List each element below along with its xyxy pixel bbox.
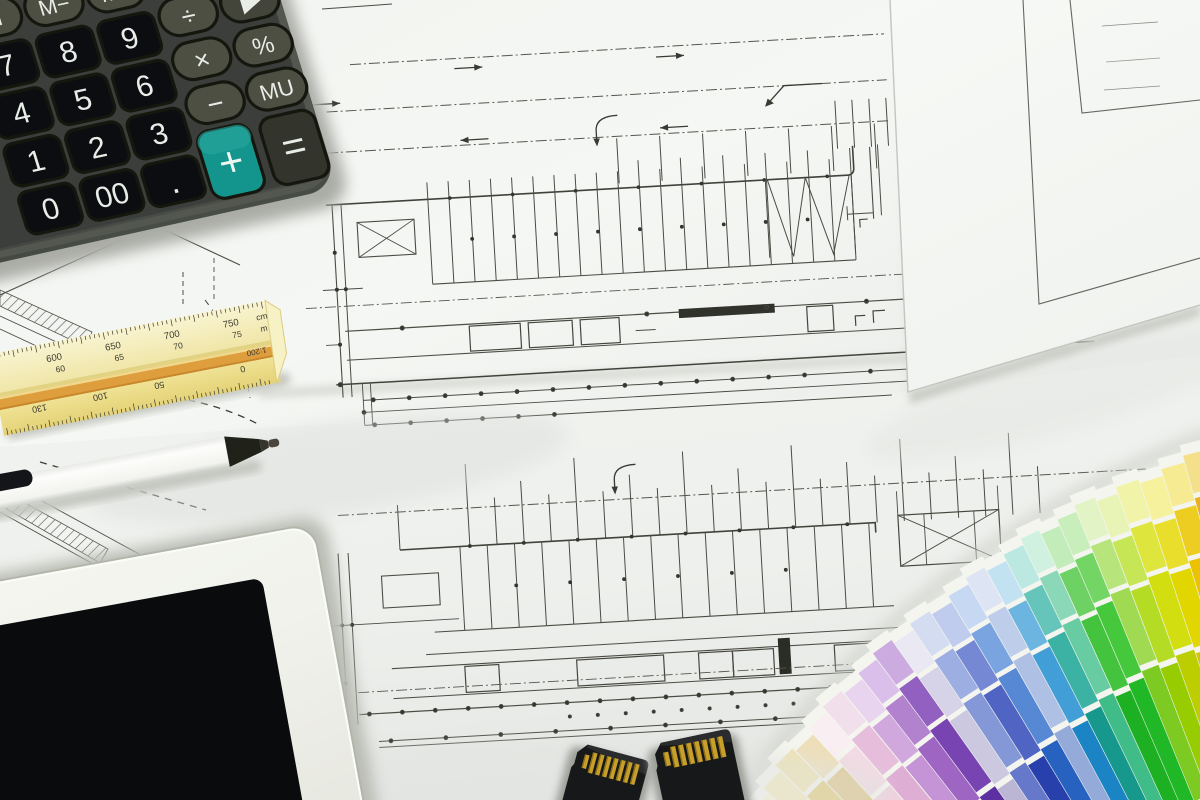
svg-text:cm: cm (255, 310, 268, 322)
svg-text:50: 50 (153, 379, 165, 391)
